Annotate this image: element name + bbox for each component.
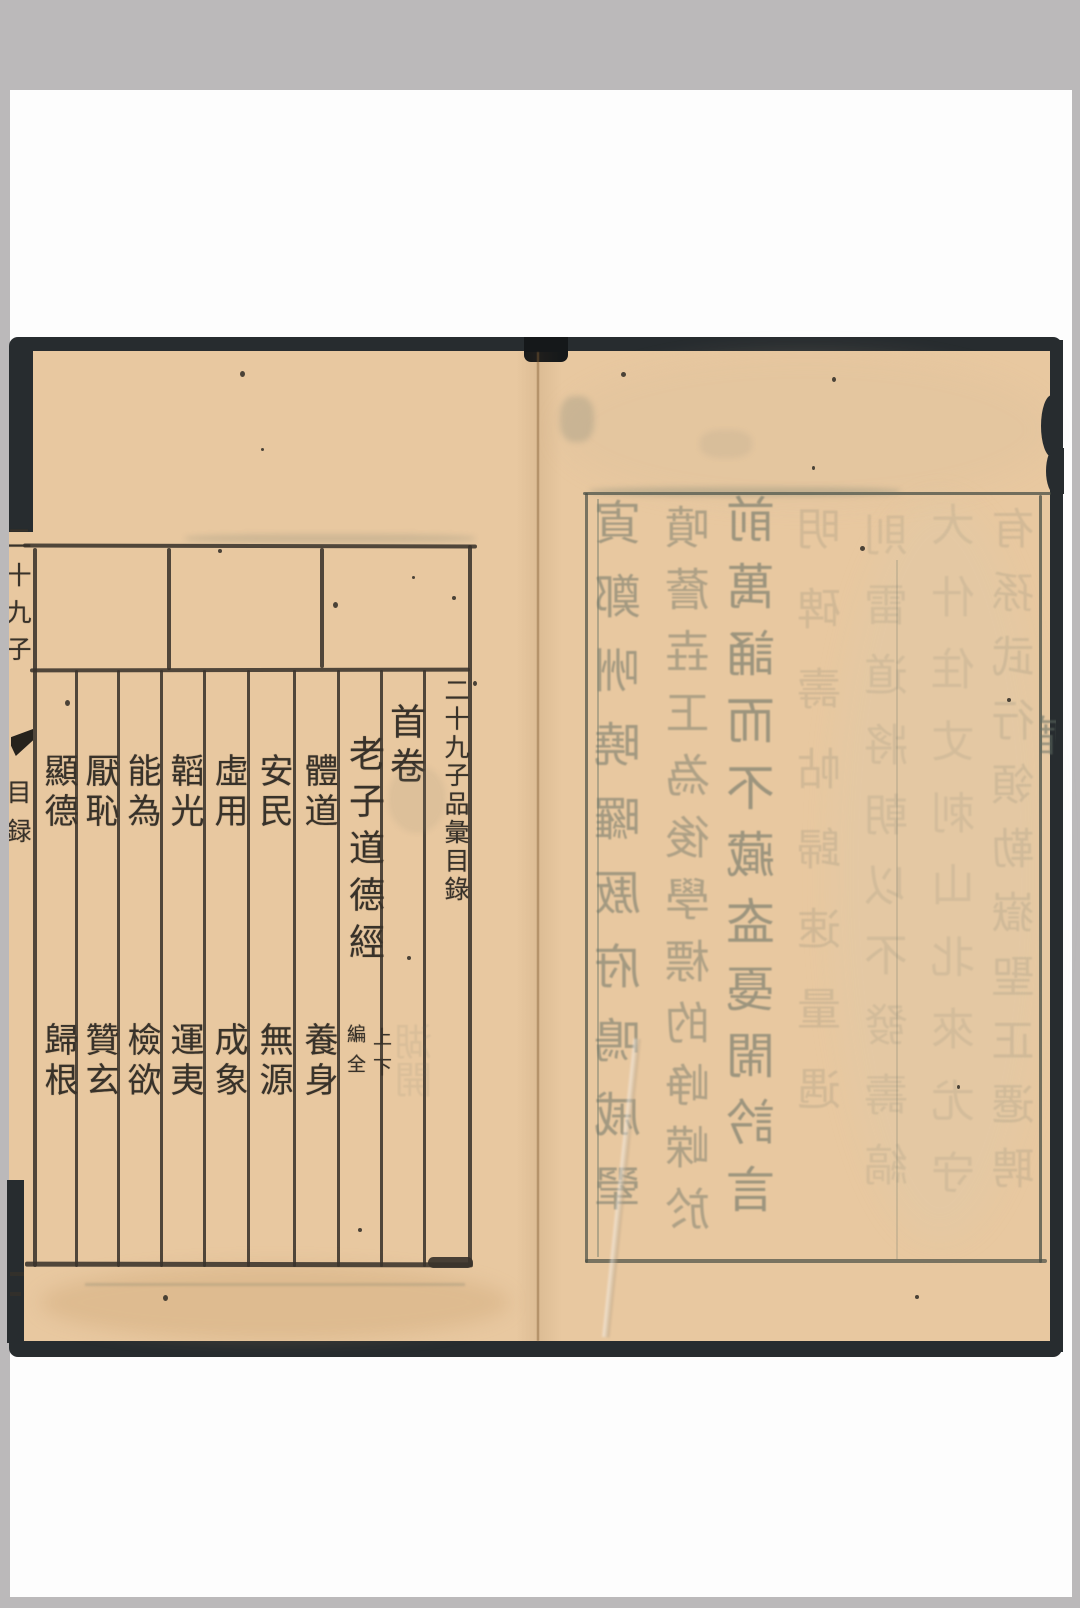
ink-speck [812, 466, 815, 470]
ink-speck [621, 372, 626, 377]
ink-smudge [560, 396, 594, 442]
toc-chapter-lower: 運夷 [161, 1022, 201, 1102]
spine-section-partial: 目録 [9, 779, 30, 857]
ink-speck [333, 602, 338, 608]
edge-char-clip: 庿 [1040, 712, 1056, 764]
ink-speck [261, 448, 264, 451]
ink-offset-line [85, 1283, 465, 1286]
spine-section-clip: 目録 [9, 776, 33, 868]
ghost-column: 有孫武行領勒嶽聖正遷聘 [996, 506, 1045, 1210]
ghost-column: 大什住丈刺山北來尤守 [936, 502, 986, 1222]
ink-speck [860, 546, 865, 551]
ink-speck [957, 1085, 960, 1089]
toc-grid-line [468, 545, 472, 1267]
toc-chapter-upper: 安民 [250, 753, 290, 833]
ghost-column: 前萬誦而不藏盇戞閙訡言 [730, 494, 785, 1231]
left-fold-shadow [7, 1180, 24, 1343]
left-page-ghost-text: 湖開 [398, 1022, 436, 1098]
edge-partial-char: 庿 [1040, 714, 1056, 756]
toc-chapter-lower: 贊玄 [76, 1022, 116, 1102]
toc-chapter-upper: 能為 [118, 753, 158, 833]
ink-smudge [700, 430, 752, 458]
ink-speck [218, 549, 222, 553]
ink-speck [163, 1295, 168, 1301]
toc-header-divider [167, 548, 171, 670]
ink-smudge [185, 534, 475, 543]
ink-speck [65, 700, 70, 706]
ghost-column: 明碑壽帖歸速量遇 [802, 506, 852, 1146]
ink-speck [915, 1295, 919, 1299]
toc-chapter-lower: 養身 [295, 1022, 335, 1102]
ghost-column: 噴薝壵㠪為後學標的峥嵘於 [669, 504, 720, 1248]
toc-grid-line [33, 548, 37, 1267]
toc-chapter-lower: 歸根 [35, 1022, 75, 1102]
toc-header-divider [320, 548, 324, 668]
spine-title-clip: 二十九子 [9, 523, 33, 695]
right-frame-bottom-line [585, 1259, 1047, 1263]
ink-speck [358, 1228, 362, 1232]
ink-speck [240, 371, 245, 377]
toc-chapter-upper: 虛用 [205, 753, 245, 833]
ink-speck [832, 377, 836, 382]
center-fold-crease [537, 352, 539, 1341]
toc-chapter-upper: 厭恥 [76, 753, 116, 833]
ink-speck [473, 681, 477, 686]
toc-chapter-upper: 韜光 [161, 753, 201, 833]
toc-work-annotation-right: 上下 [366, 1027, 390, 1087]
toc-work-annotation-left: 編全 [340, 1024, 364, 1084]
left-fold-shadow [9, 351, 33, 532]
toc-volume-heading: 首卷 [384, 703, 422, 791]
ink-speck [412, 576, 415, 579]
ink-speck [407, 956, 411, 960]
toc-chapter-lower: 成象 [205, 1022, 245, 1102]
right-frame-left-line [585, 493, 588, 1263]
toc-chapter-lower: 無源 [250, 1022, 290, 1102]
ghost-column: 則雷道將朝以不發壽縞 [869, 512, 919, 1212]
ink-speck [1007, 698, 1011, 702]
toc-work-title: 老子道德經 [343, 735, 381, 970]
book-scan: 二十九子品彙目錄 首卷 老子道德經 上下 編全 體道養身安民無源虛用成象韜光運夷… [0, 0, 1080, 1608]
toc-bottom-ink-blob [428, 1257, 473, 1268]
center-fold-shade [516, 352, 562, 1341]
right-edge-strip [1050, 340, 1063, 1352]
spine-partial-stroke [10, 1292, 21, 1296]
toc-title: 二十九子品彙目錄 [432, 677, 468, 904]
toc-chapter-upper: 顯德 [35, 753, 75, 833]
spine-title-partial: 二十九子 [9, 525, 30, 673]
spine-partial-stroke [10, 1272, 24, 1276]
toc-chapter-upper: 體道 [295, 753, 335, 833]
ink-speck [452, 596, 456, 600]
toc-chapter-lower: 檢欲 [118, 1022, 158, 1102]
